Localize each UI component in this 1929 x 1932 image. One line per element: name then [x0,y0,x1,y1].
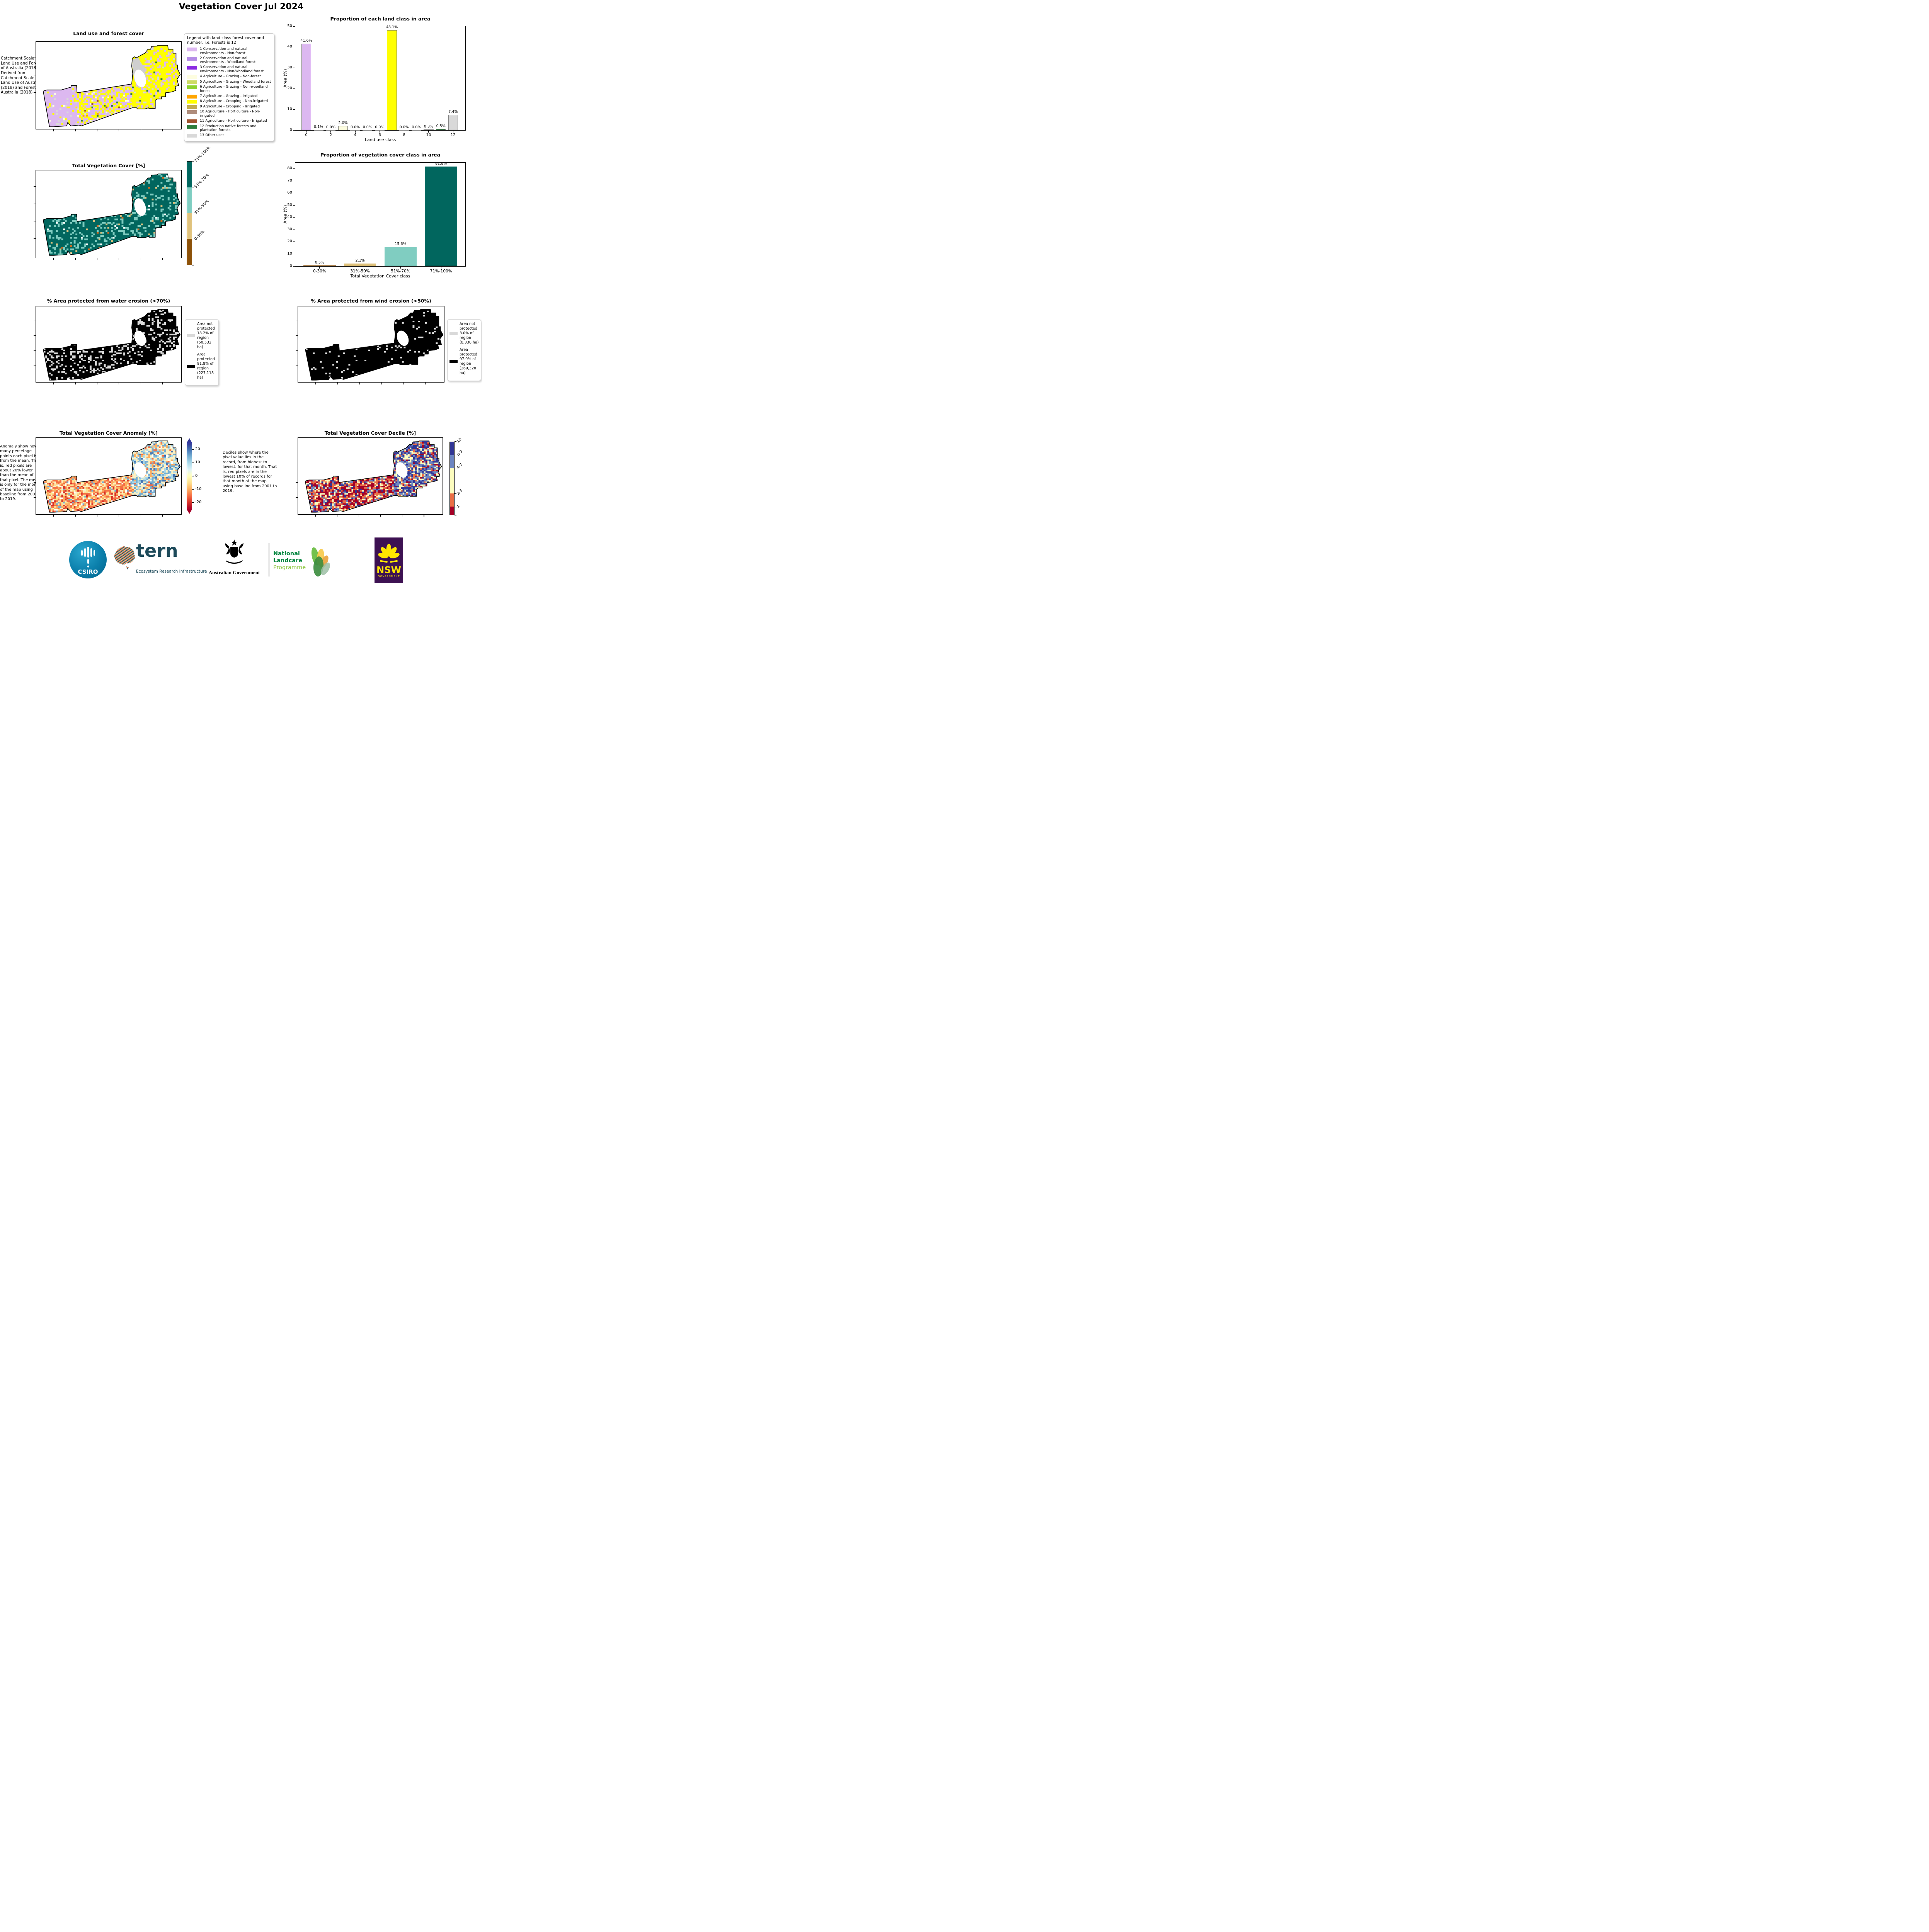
decilecb-segment-3 [450,493,454,507]
landclass-bar-10 [424,129,433,130]
x-tick-4 [403,383,404,384]
landclass-bar-value-3: 2.0% [338,121,347,125]
national-landcare-programme-label: National Landcare Programme [273,550,306,571]
x-tick-5 [162,129,163,131]
y-tick-2 [34,350,36,351]
anomaly-cb-arrow-down [187,509,192,514]
legend-item-10: 10 Agriculture - Horticulture - Non-irri… [187,110,271,118]
vegclass-xtick-3 [441,267,441,269]
landclass-xtick-label-3: 6 [378,133,381,137]
y-tick-1 [34,204,36,204]
wind-erosion-map-title: % Area protected from wind erosion (>50%… [298,298,444,304]
landuse-legend-title: Legend with land class forest cover and … [187,36,271,45]
x-tick-0 [315,383,316,384]
legend-swatch-8 [187,100,197,104]
vegclass-chart-xlabel: Total Vegetation Cover class [295,274,466,279]
landclass-ytick-label-4: 40 [282,44,292,49]
anomaly-cb-tick-2 [192,476,194,476]
x-tick-4 [402,515,402,517]
vegclass-category-label-2: 51%-70% [391,269,410,274]
nlp-line-1: National [273,550,306,557]
landclass-ytick-1 [293,109,295,110]
landclass-bar-value-8: 0.0% [400,125,409,129]
vegcb-segment-3 [187,239,192,265]
wind-legend-item-1: Area protected 97.0% of region (269,320 … [449,348,479,376]
y-tick-2 [34,482,36,483]
water-erosion-legend: Area not protected 18.2% of region (50,5… [185,319,219,386]
anomaly-colorbar: 20100-10-20 [187,438,192,514]
legend-label-4: 4 Agriculture - Grazing - Non-forest [200,75,261,79]
wind-legend-label-0: Area not protected 3.0% of region (8,330… [460,322,479,345]
wind-erosion-map-canvas [298,306,444,382]
water-legend-swatch-1 [187,365,195,368]
x-tick-3 [381,383,382,384]
legend-label-8: 8 Agriculture - Cropping - Non-irrigated [200,99,268,104]
nsw-logo-text: NSW [376,565,401,575]
vegclass-ytick-3 [293,230,295,230]
nlp-line-2: Landcare [273,557,306,564]
landclass-xtick-1 [330,131,331,133]
vegetation-report: Vegetation Cover Jul 2024 Land use and f… [0,0,482,583]
decile-colorbar: 108-94-72-31 [449,442,455,515]
vegclass-ytick-label-2: 20 [282,239,292,243]
x-tick-2 [359,383,360,384]
landclass-bar-value-11: 0.5% [436,124,446,128]
landclass-xtick-label-4: 8 [403,133,405,137]
landclass-bar-1 [314,130,323,131]
y-tick-3 [34,238,36,239]
landclass-chart: 0102030405041.6%0.1%0.0%2.0%0.0%0.0%0.0%… [295,26,466,131]
landclass-bar-value-7: 48.1% [386,25,398,29]
decilecb-segment-1 [450,455,454,468]
legend-label-7: 7 Agriculture - Grazing - Irrigated [200,94,257,99]
vegclass-ytick-label-8: 80 [282,166,292,170]
anomaly-map-canvas [36,438,181,514]
landuse-map [36,41,182,129]
legend-item-4: 4 Agriculture - Grazing - Non-forest [187,75,271,79]
vegclass-bar-2 [385,247,417,266]
y-tick-1 [34,467,36,467]
y-tick-0 [296,320,298,320]
tern-tagline: Ecosystem Research Infrastructure [136,569,207,574]
vegclass-ytick-8 [293,168,295,169]
anomaly-cb-tick-4 [192,502,194,503]
x-tick-1 [75,258,76,260]
anomaly-map [36,437,182,515]
nsw-logo-subtext: GOVERNMENT [378,575,400,578]
decile-note: Deciles show where the pixel value lies … [223,451,278,494]
y-tick-1 [34,75,36,75]
water-legend-item-1: Area protected 81.8% of region (227,118 … [187,352,216,380]
landclass-xtick-6 [453,131,453,133]
decilecb-tick-1 [455,455,456,455]
vegclass-ytick-4 [293,217,295,218]
landclass-xtick-5 [428,131,429,133]
x-tick-1 [337,515,337,517]
legend-item-8: 8 Agriculture - Cropping - Non-irrigated [187,99,271,104]
landclass-bar-value-10: 0.3% [424,124,433,129]
x-tick-5 [425,383,426,384]
x-tick-1 [75,515,76,517]
landclass-bar-12 [448,115,458,130]
x-tick-1 [75,129,76,131]
y-tick-0 [296,452,298,452]
australian-government-label: Australian Government [207,570,261,576]
landclass-xtick-label-5: 10 [426,133,431,137]
decilecb-tick-end [455,515,456,515]
landclass-bar-5 [363,130,372,131]
vegcb-tick-0 [192,161,194,161]
decilecb-segment-0 [450,442,454,455]
anomaly-cb-tick-label-2: 0 [195,474,197,478]
vegcb-body [187,161,192,265]
water-erosion-map-title: % Area protected from water erosion (>70… [36,298,182,304]
landclass-bar-value-9: 0.0% [412,125,421,129]
nsw-government-logo: NSW GOVERNMENT [375,537,403,583]
landclass-ytick-5 [293,26,295,26]
y-tick-1 [296,467,298,467]
landclass-xtick-4 [404,131,404,133]
csiro-logo: CSIRO [69,541,107,578]
legend-label-12: 12 Production native forests and plantat… [200,124,271,133]
decilecb-label-4: 1 [456,504,461,509]
legend-label-6: 6 Agriculture - Grazing - Non-woodland f… [200,85,271,93]
landclass-bar-3 [338,126,348,130]
wind-legend-swatch-1 [449,360,458,363]
x-tick-4 [141,515,141,517]
legend-swatch-9 [187,105,197,109]
landclass-ytick-label-1: 10 [282,107,292,111]
legend-swatch-13 [187,134,197,138]
decilecb-segment-2 [450,468,454,494]
decilecb-tick-3 [455,493,456,494]
legend-swatch-7 [187,95,197,99]
vegcb-label-0: 71%-100% [194,145,211,163]
water-erosion-map [36,306,182,383]
water-legend-label-0: Area not protected 18.2% of region (50,5… [197,322,216,350]
x-tick-3 [119,383,119,384]
landclass-chart-xlabel: Land use class [295,137,466,142]
landclass-bar-value-4: 0.0% [351,125,360,129]
nlp-line-3: Programme [273,564,306,571]
y-tick-2 [34,221,36,221]
anomaly-cb-tick-label-4: -20 [195,500,201,504]
landcare-leaf-icon [308,543,332,579]
decilecb-label-3: 2-3 [456,488,463,496]
decilecb-label-2: 4-7 [456,463,463,470]
x-tick-5 [162,515,163,517]
anomaly-cb-tick-label-0: 20 [195,447,200,451]
y-tick-1 [34,335,36,336]
vegclass-ytick-label-1: 10 [282,252,292,256]
legend-swatch-5 [187,80,197,84]
legend-label-1: 1 Conservation and natural environments … [200,47,271,55]
vegclass-bar-3 [425,167,457,266]
vegcb-tick-2 [192,213,194,213]
anomaly-map-title: Total Vegetation Cover Anomaly [%] [36,430,182,436]
landclass-bar-value-1: 0.1% [314,125,323,129]
legend-label-2: 2 Conservation and natural environments … [200,56,271,65]
legend-item-7: 7 Agriculture - Grazing - Irrigated [187,94,271,99]
y-tick-0 [34,452,36,452]
page-title: Vegetation Cover Jul 2024 [0,2,482,12]
legend-swatch-1 [187,48,197,51]
footer-divider [269,543,269,577]
vegclass-chart: 010203040506070800.5%2.1%15.6%81.8%0-30%… [295,162,466,267]
legend-item-12: 12 Production native forests and plantat… [187,124,271,133]
vegcb-tick-end [192,265,194,265]
water-legend-label-1: Area protected 81.8% of region (227,118 … [197,352,216,380]
vegcb-label-1: 51%-70% [194,173,210,189]
vegclass-ytick-1 [293,254,295,254]
wind-legend-swatch-0 [449,332,458,335]
vegcover-map-canvas [36,170,181,258]
y-tick-2 [296,350,298,351]
legend-item-3: 3 Conservation and natural environments … [187,65,271,73]
y-tick-3 [34,497,36,498]
y-tick-3 [34,366,36,366]
landclass-bar-value-2: 0.0% [326,125,335,129]
vegclass-ytick-6 [293,193,295,193]
anomaly-cb-tick-0 [192,449,194,450]
legend-item-9: 9 Agriculture - Cropping - Irrigated [187,105,271,109]
x-tick-0 [53,383,54,384]
x-tick-2 [97,129,97,131]
landclass-bar-value-12: 7.4% [448,110,458,114]
landclass-bar-value-0: 41.6% [300,39,312,43]
vegcover-colorbar: 71%-100%51%-70%31%-50%0-30% [187,161,192,265]
tern-logo-text: tern [136,542,178,560]
decilecb-label-1: 8-9 [456,449,463,457]
vegclass-category-label-0: 0-30% [313,269,326,274]
landclass-bar-value-5: 0.0% [363,125,372,129]
vegclass-xtick-0 [319,267,320,269]
wind-legend-item-0: Area not protected 3.0% of region (8,330… [449,322,479,345]
vegclass-ytick-5 [293,205,295,206]
decilecb-tick-0 [455,441,456,442]
x-tick-0 [53,129,54,131]
y-tick-3 [296,366,298,366]
landclass-xtick-0 [306,131,306,133]
landclass-ytick-4 [293,47,295,47]
vegclass-ytick-label-6: 60 [282,190,292,195]
vegclass-bar-value-1: 2.1% [356,259,365,263]
x-tick-3 [119,129,119,131]
y-tick-3 [34,110,36,110]
legend-item-2: 2 Conservation and natural environments … [187,56,271,65]
x-tick-5 [162,383,163,384]
y-tick-0 [34,186,36,187]
vegcover-map-title: Total Vegetation Cover [%] [36,163,182,168]
vegclass-chart-ylabel: Area (%) [283,201,288,228]
x-tick-0 [53,258,54,260]
water-legend-swatch-0 [187,334,195,337]
vegclass-category-label-1: 31%-50% [350,269,369,274]
x-tick-3 [119,258,119,260]
legend-label-3: 3 Conservation and natural environments … [200,65,271,73]
vegcover-map [36,170,182,258]
landuse-legend: Legend with land class forest cover and … [184,33,274,141]
vegcb-label-3: 0-30% [194,230,206,241]
vegclass-bar-value-2: 15.6% [395,242,406,246]
water-erosion-map-canvas [36,306,181,382]
anomaly-cb-tick-3 [192,489,194,490]
landuse-map-title: Land use and forest cover [36,31,182,36]
x-tick-0 [315,515,316,517]
x-tick-0 [53,515,54,517]
landuse-legend-items: 1 Conservation and natural environments … [187,47,271,138]
landclass-xtick-2 [355,131,356,133]
x-tick-2 [97,383,97,384]
decilecb-label-0: 10 [456,437,463,444]
decilecb-segment-4 [450,507,454,515]
vegclass-ytick-label-7: 70 [282,179,292,183]
vegclass-xtick-2 [400,267,401,269]
x-tick-2 [359,515,359,517]
water-legend-item-0: Area not protected 18.2% of region (50,5… [187,322,216,350]
csiro-logo-text: CSIRO [78,568,98,575]
vegclass-bar-1 [344,264,376,266]
landclass-bar-11 [436,129,446,130]
wind-erosion-legend: Area not protected 3.0% of region (8,330… [447,319,481,381]
y-tick-2 [296,482,298,483]
y-tick-3 [296,497,298,498]
decile-map-canvas [298,438,443,514]
anomaly-cb-tick-1 [192,463,194,463]
decilecb-body [449,442,455,515]
wind-legend-label-1: Area protected 97.0% of region (269,320 … [460,348,479,376]
legend-swatch-10 [187,110,197,114]
vegclass-xtick-1 [360,267,360,269]
csiro-wave-icon: CSIRO [69,541,107,578]
landclass-xtick-label-0: 0 [305,133,307,137]
waratah-icon: NSW GOVERNMENT [375,537,403,583]
x-tick-3 [119,515,119,517]
vegclass-ytick-label-0: 0 [282,264,292,268]
anomaly-cb-tick-label-3: -10 [195,487,201,491]
legend-label-11: 11 Agriculture - Horticulture - Irrigate… [200,119,267,123]
anomaly-cb-arrow-up [187,438,192,443]
landclass-chart-title: Proportion of each land class in area [295,16,466,22]
vegclass-ytick-label-3: 30 [282,227,292,231]
vegcb-tick-1 [192,187,194,187]
decilecb-tick-2 [455,468,456,468]
y-tick-2 [34,92,36,93]
landclass-ytick-0 [293,130,295,130]
x-tick-5 [424,515,424,517]
vegcb-segment-0 [187,162,192,187]
vegcb-segment-2 [187,213,192,239]
vegclass-bar-value-0: 0.5% [315,260,324,265]
vegclass-ytick-0 [293,266,295,266]
decilecb-tick-4 [455,507,456,507]
landclass-ytick-2 [293,88,295,89]
landclass-bar-value-6: 0.0% [375,125,384,129]
legend-label-5: 5 Agriculture - Grazing - Woodland fores… [200,80,271,84]
landclass-xtick-label-2: 4 [354,133,356,137]
vegclass-chart-title: Proportion of vegetation cover class in … [295,152,466,158]
vegclass-ytick-7 [293,181,295,181]
legend-swatch-3 [187,66,197,70]
legend-item-5: 5 Agriculture - Grazing - Woodland fores… [187,80,271,84]
x-tick-3 [380,515,381,517]
landclass-xtick-label-1: 2 [330,133,332,137]
legend-label-10: 10 Agriculture - Horticulture - Non-irri… [200,110,271,118]
x-tick-2 [97,258,97,260]
vegclass-category-label-3: 71%-100% [430,269,452,274]
anomaly-cb-body [187,443,192,509]
legend-item-11: 11 Agriculture - Horticulture - Irrigate… [187,119,271,123]
legend-label-13: 13 Other uses [200,133,224,138]
legend-swatch-11 [187,119,197,123]
legend-item-13: 13 Other uses [187,133,271,138]
landclass-xtick-label-6: 12 [451,133,456,137]
australian-government-crest-icon [219,538,250,569]
vegcb-segment-1 [187,187,192,213]
x-tick-4 [141,258,141,260]
anomaly-cb-tick-label-1: 10 [195,460,200,464]
legend-item-1: 1 Conservation and natural environments … [187,47,271,55]
decile-map-title: Total Vegetation Cover Decile [%] [298,430,443,436]
vegclass-ytick-2 [293,241,295,242]
legend-swatch-12 [187,125,197,129]
landclass-chart-ylabel: Area (%) [283,65,288,92]
x-tick-5 [162,258,163,260]
x-tick-2 [97,515,97,517]
vegclass-bar-value-3: 81.8% [435,162,447,166]
legend-swatch-6 [187,85,197,89]
vegclass-bar-0 [303,265,336,266]
legend-swatch-4 [187,75,197,79]
landclass-bar-9 [412,130,421,131]
y-tick-0 [34,58,36,58]
decile-map [298,437,443,515]
x-tick-1 [75,383,76,384]
landclass-ytick-3 [293,68,295,68]
landclass-ytick-label-0: 0 [282,128,292,132]
x-tick-4 [141,383,141,384]
legend-label-9: 9 Agriculture - Cropping - Irrigated [200,105,260,109]
y-tick-1 [296,335,298,336]
tern-australia-icon [111,542,136,575]
vegcb-label-2: 31%-50% [194,199,210,215]
landclass-xtick-3 [380,131,380,133]
legend-item-6: 6 Agriculture - Grazing - Non-woodland f… [187,85,271,93]
landclass-bar-0 [301,44,311,130]
landclass-ytick-label-5: 50 [282,24,292,28]
vegcb-tick-3 [192,239,194,239]
y-tick-0 [34,320,36,320]
x-tick-1 [337,383,338,384]
wind-erosion-map [298,306,444,383]
landclass-bar-7 [387,30,397,130]
x-tick-4 [141,129,141,131]
landuse-map-canvas [36,42,181,129]
legend-swatch-2 [187,57,197,61]
